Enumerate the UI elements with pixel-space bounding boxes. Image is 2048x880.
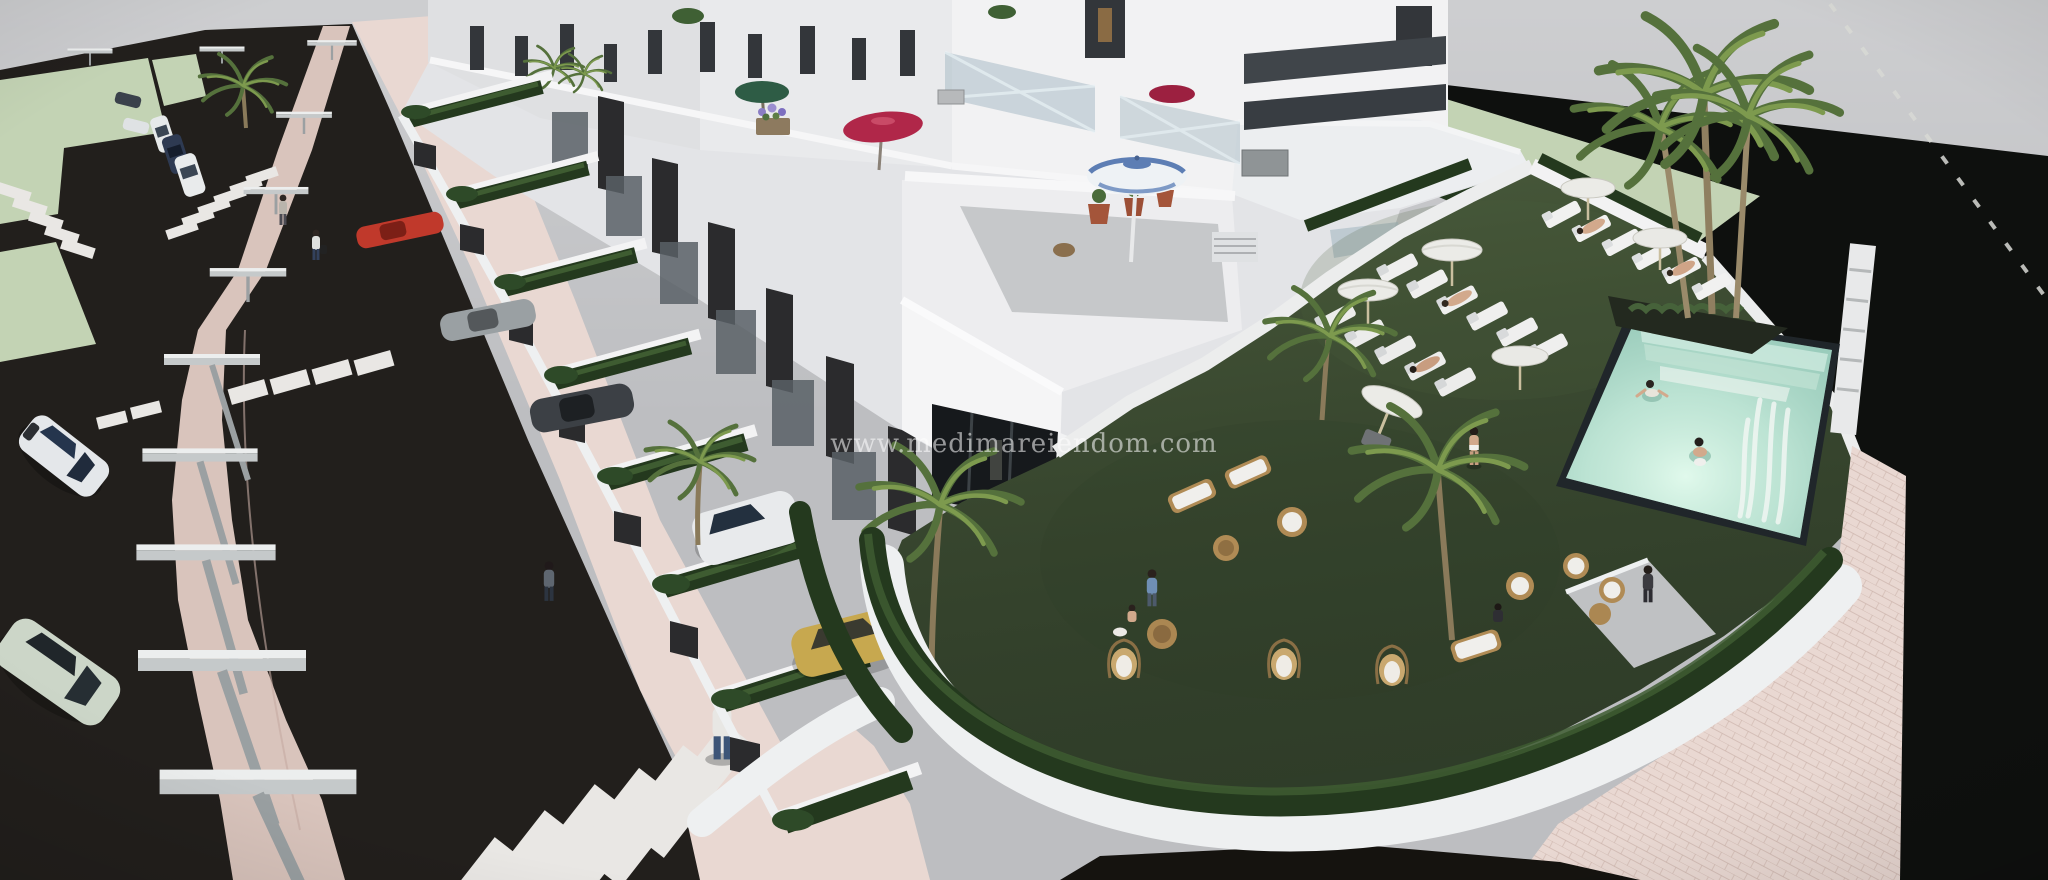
- vignette-overlay: [0, 0, 2048, 880]
- render-image: www.medimareiendom.com: [0, 0, 2048, 880]
- render-screenshot: www.medimareiendom.com: [0, 0, 2048, 880]
